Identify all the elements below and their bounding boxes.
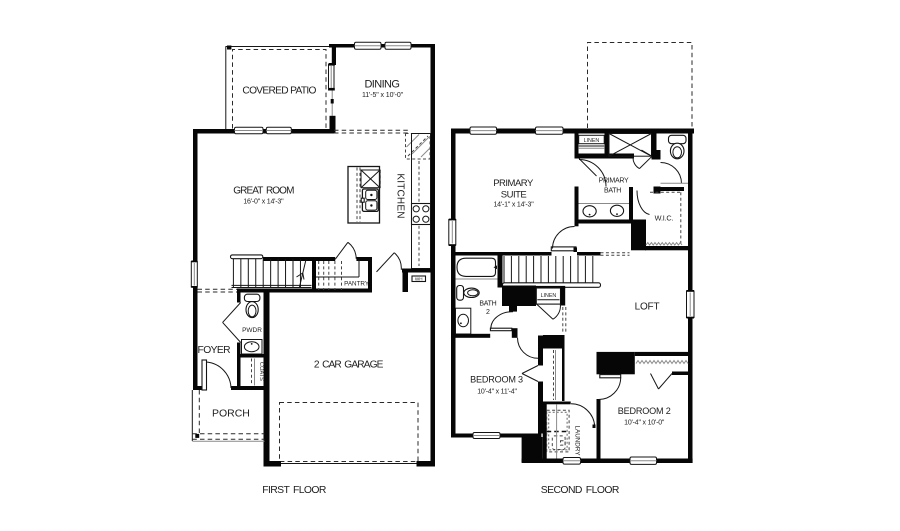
svg-text:LAUNDRY: LAUNDRY [573,426,580,457]
svg-text:LOFT: LOFT [635,301,660,312]
svg-text:COVERED PATIO: COVERED PATIO [242,85,316,96]
svg-text:16'-0" x 14'-3": 16'-0" x 14'-3" [243,199,284,206]
svg-text:BATH: BATH [479,301,496,308]
svg-text:2 CAR GARAGE: 2 CAR GARAGE [314,359,384,370]
svg-text:FOYER: FOYER [198,345,231,356]
svg-text:DINING: DINING [364,78,399,90]
svg-text:10'-4" x 11'-4": 10'-4" x 11'-4" [477,389,517,396]
svg-text:LINEN: LINEN [541,293,557,299]
svg-text:SECOND FLOOR: SECOND FLOOR [541,485,620,496]
svg-text:W.I.C.: W.I.C. [655,214,674,223]
svg-text:SUITE: SUITE [501,190,527,201]
svg-text:COATS: COATS [258,362,264,381]
svg-text:GREAT ROOM: GREAT ROOM [233,186,294,197]
svg-text:PORCH: PORCH [212,408,250,420]
svg-text:14'-1" x 14'-3": 14'-1" x 14'-3" [493,201,534,208]
svg-text:KITCHEN: KITCHEN [395,173,406,218]
svg-text:2: 2 [486,309,490,316]
svg-text:11'-5" x 10'-0": 11'-5" x 10'-0" [362,92,404,99]
svg-text:10'-4" x 10'-0": 10'-4" x 10'-0" [624,419,665,426]
svg-text:BEDROOM 3: BEDROOM 3 [470,374,523,384]
svg-text:BATH: BATH [604,188,621,195]
svg-text:WH: WH [415,277,423,282]
svg-text:BEDROOM 2: BEDROOM 2 [618,406,671,416]
svg-text:PWDR: PWDR [242,327,262,334]
svg-text:LINEN: LINEN [584,138,600,144]
svg-text:PRIMARY: PRIMARY [493,178,534,189]
svg-text:FIRST FLOOR: FIRST FLOOR [262,485,327,496]
svg-text:PRIMARY: PRIMARY [599,178,629,185]
svg-text:PANTRY: PANTRY [344,280,370,287]
